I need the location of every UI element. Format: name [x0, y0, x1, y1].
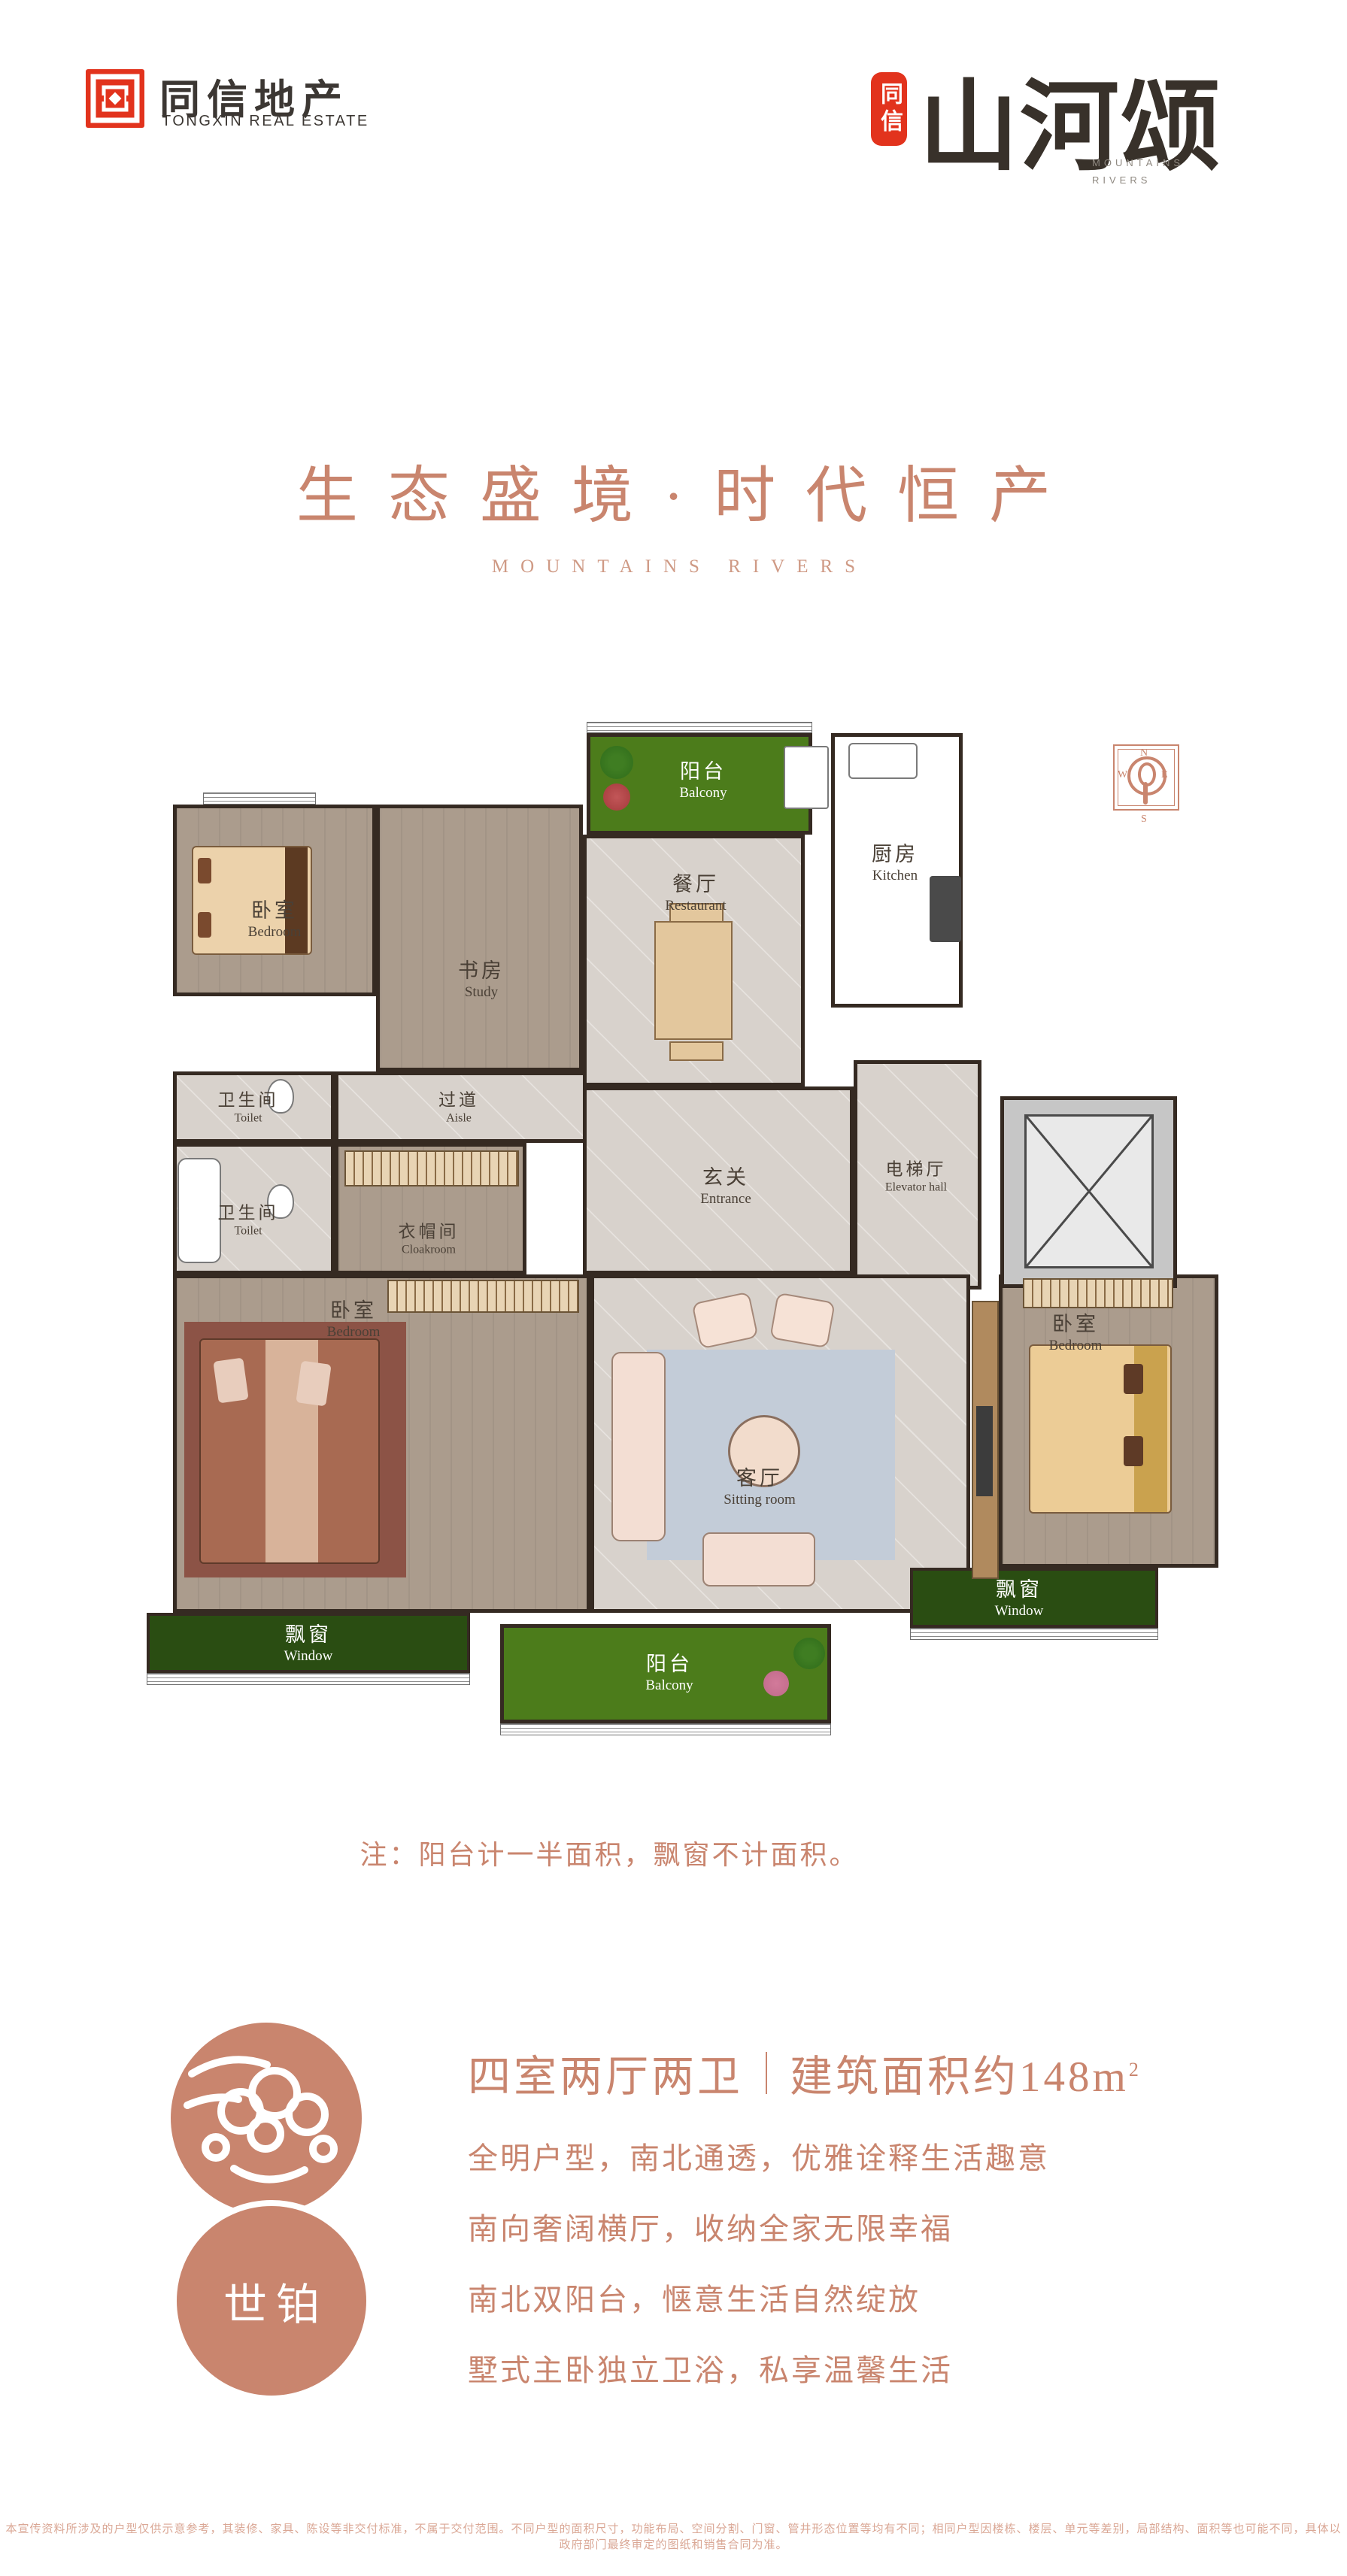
disclaimer-text: 本宣传资料所涉及的户型仅供示意参考，其装修、家具、陈设等非交付标准，不属于交付范…: [0, 2520, 1347, 2552]
floor-plan: 卧室Bedroom 书房Study 阳台Balcony 厨房Kitchen 餐厅…: [128, 699, 1226, 1752]
elevator-x-icon: [1027, 1117, 1151, 1266]
plant: [763, 1671, 789, 1696]
label-window-east: 飘窗Window: [995, 1573, 1044, 1620]
window-strip: [587, 722, 812, 733]
badge-text: 世铂: [214, 2269, 329, 2332]
east-wardrobe: [1023, 1278, 1173, 1308]
kitchen-sink: [848, 743, 918, 779]
window-strip: [147, 1673, 470, 1685]
window-strip: [203, 792, 316, 805]
bed-east: [1029, 1344, 1172, 1514]
plant: [600, 746, 633, 779]
logo-text-en: TONGXIN REAL ESTATE: [162, 113, 369, 130]
label-window-west: 飘窗Window: [284, 1618, 333, 1665]
compass-w: W: [1118, 769, 1127, 781]
spec-divider: [766, 2052, 767, 2094]
window-strip: [500, 1723, 831, 1735]
bathtub: [177, 1158, 221, 1263]
hero-title: 生态盛境·时代恒产: [0, 445, 1347, 535]
label-toilet-north: 卫生间Toilet: [218, 1086, 279, 1126]
plant: [793, 1638, 825, 1669]
compass-n: N: [1140, 747, 1148, 759]
badge-circle: 世铂: [171, 2200, 372, 2402]
brand-calligraphy: 山河颂: [919, 47, 1235, 190]
loveseat: [702, 1532, 815, 1587]
spec-area: 建筑面积约148m2: [790, 2042, 1142, 2104]
selling-point-2: 南向奢阔横厅，收纳全家无限幸福: [468, 2205, 1220, 2248]
window-strip: [910, 1628, 1158, 1640]
master-wardrobe: [387, 1280, 579, 1313]
stove: [930, 876, 961, 942]
dining-table: [654, 921, 733, 1040]
brand-english-line2: RIVERS: [1092, 172, 1184, 189]
label-restaurant: 餐厅Restaurant: [665, 868, 726, 914]
compass-e: E: [1161, 769, 1168, 781]
label-kitchen: 厨房Kitchen: [872, 838, 918, 884]
label-study: 书房Study: [458, 954, 505, 1001]
tv: [976, 1406, 993, 1496]
washing-machine: [784, 746, 829, 809]
compass-needle-stem: [1143, 782, 1148, 805]
elevator-shaft: [1024, 1114, 1154, 1268]
selling-point-3: 南北双阳台，惬意生活自然绽放: [468, 2275, 1220, 2319]
hero-subtitle: MOUNTAINS RIVERS: [0, 556, 1347, 577]
room-study: [376, 805, 583, 1071]
selling-point-1: 全明户型，南北通透，优雅诠释生活趣意: [468, 2134, 1220, 2177]
label-balcony-south: 阳台Balcony: [645, 1647, 693, 1694]
brand-english: MOUNTAINS RIVERS: [1092, 155, 1184, 189]
brand-english-line1: MOUNTAINS: [1092, 155, 1184, 172]
tongxin-logo-icon: [86, 69, 144, 128]
cloud-pattern-icon: [169, 2021, 363, 2215]
logo-mark-icon: [86, 69, 144, 128]
plant: [603, 783, 630, 811]
label-toilet-south: 卫生间Toilet: [218, 1199, 279, 1238]
master-bed: [199, 1338, 380, 1564]
label-bedroom-east: 卧室Bedroom: [1049, 1308, 1103, 1354]
cloak-wardrobe: [344, 1150, 519, 1186]
label-entrance: 玄关Entrance: [700, 1161, 751, 1208]
label-cloakroom: 衣帽间Cloakroom: [399, 1217, 460, 1257]
armchair: [769, 1293, 836, 1349]
selling-point-4: 墅式主卧独立卫浴，私享温馨生活: [468, 2346, 1220, 2390]
sofa-main: [611, 1352, 666, 1541]
spec-rooms: 四室两厅两卫: [468, 2042, 743, 2104]
label-master-bedroom: 卧室Bedroom: [327, 1294, 381, 1341]
spec-area-sup: 2: [1129, 2059, 1142, 2080]
brand-seal: 同信: [871, 72, 907, 146]
label-bedroom-north: 卧室Bedroom: [248, 894, 302, 941]
badge-cloud: [169, 2021, 363, 2215]
area-note: 注：阳台计一半面积，飘窗不计面积。: [0, 1833, 1218, 1872]
label-elevator-hall: 电梯厅Elevator hall: [885, 1155, 947, 1195]
compass-s: S: [1141, 814, 1147, 826]
label-aisle: 过道Aisle: [438, 1086, 479, 1126]
label-sitting-room: 客厅Sitting room: [724, 1462, 796, 1508]
label-balcony-north: 阳台Balcony: [679, 755, 727, 802]
spec-title: 四室两厅两卫 建筑面积约148m2: [468, 2042, 1142, 2104]
